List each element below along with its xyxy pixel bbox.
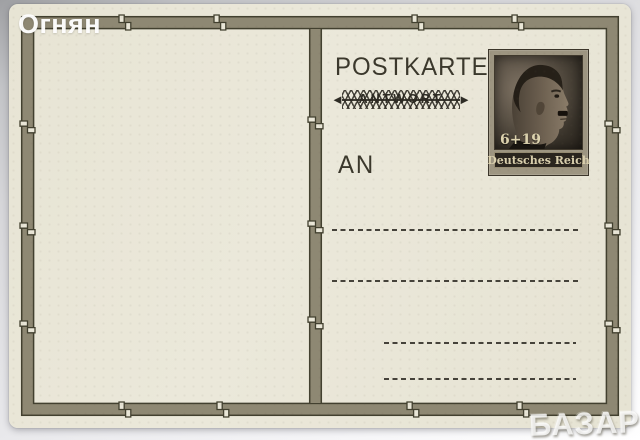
stamp-denomination: 6+19 — [500, 133, 541, 147]
postcard-title: POSTKARTE — [335, 55, 489, 80]
photo-background: POSTKARTE ◄ ANTWORT ► AN — [0, 0, 640, 440]
address-label: AN — [338, 153, 375, 178]
address-line — [332, 280, 579, 282]
stamp-country: Deutsches Reich — [494, 152, 583, 168]
seller-watermark: Огнян — [18, 11, 101, 38]
antwort-overprint: ◄ ANTWORT ► — [331, 88, 471, 111]
strike-arrow-left-icon: ◄ — [331, 93, 344, 106]
strike-arrow-right-icon: ► — [458, 93, 471, 106]
stamp-image: 6+19 — [494, 55, 583, 150]
address-line — [332, 229, 578, 231]
address-line — [384, 378, 576, 380]
marketplace-watermark: БАЗАР — [529, 406, 640, 440]
address-line — [384, 342, 576, 344]
postcard: POSTKARTE ◄ ANTWORT ► AN — [9, 4, 631, 428]
postage-stamp: 6+19 Deutsches Reich — [488, 49, 589, 176]
reply-label: ANTWORT — [359, 92, 444, 106]
